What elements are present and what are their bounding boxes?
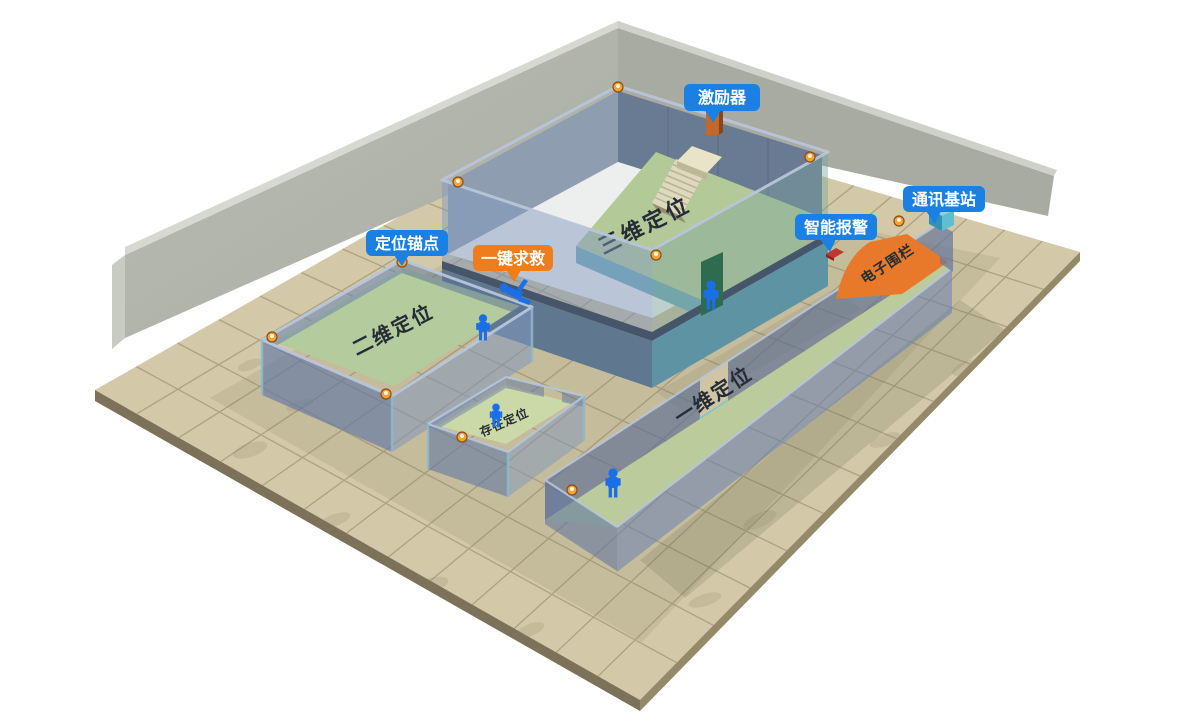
anchor-dot <box>457 432 467 442</box>
label-sos-text: 一键求救 <box>481 249 545 268</box>
label-comm-base-text: 通讯基站 <box>912 190 976 209</box>
anchor-dot <box>894 216 904 226</box>
anchor-dot <box>453 177 463 187</box>
label-positioning-anchor-text: 定位锚点 <box>374 234 439 253</box>
label-exciter-text: 激励器 <box>698 88 747 107</box>
anchor-dot <box>567 485 577 495</box>
scene-canvas: 三维定位 二维定位 <box>0 0 1200 723</box>
anchor-dot <box>805 152 815 162</box>
anchor-dot <box>613 82 623 92</box>
anchor-dot <box>381 389 391 399</box>
label-smart-alarm-text: 智能报警 <box>804 218 868 237</box>
anchor-dot <box>651 250 661 260</box>
anchor-dot <box>267 332 277 342</box>
back-wall-end-cap <box>112 255 125 349</box>
